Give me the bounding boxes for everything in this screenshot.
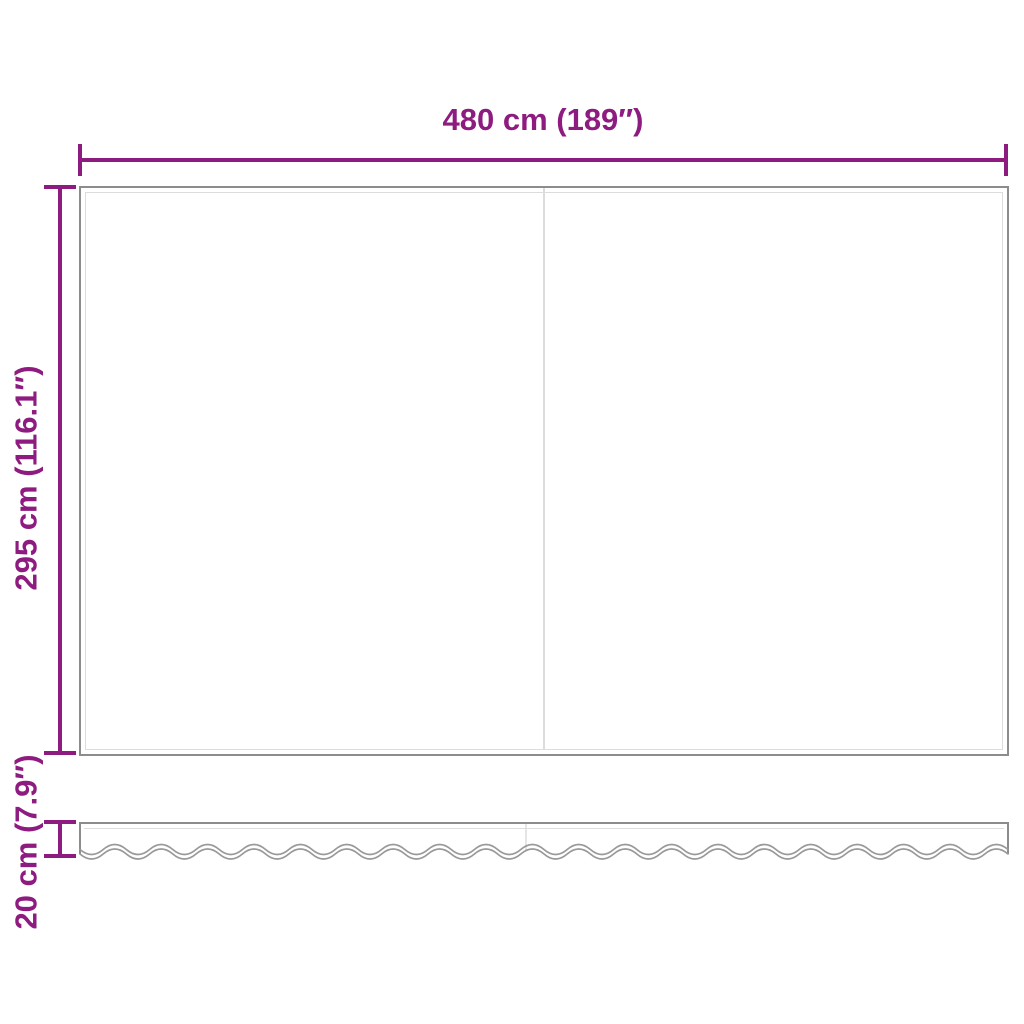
width-dimension-right-tick [1004, 144, 1008, 176]
height-dimension-line [58, 187, 62, 755]
width-dimension-left-tick [78, 144, 82, 176]
height-dimension-top-tick [44, 185, 76, 189]
valance-dimension-bottom-tick [44, 854, 76, 858]
valance-height-dimension-line [58, 822, 62, 858]
height-dimension-label: 295 cm (116.1″) [11, 365, 42, 590]
valance-height-dimension-label: 20 cm (7.9″) [11, 754, 42, 929]
width-dimension-line [80, 158, 1006, 162]
valance-strip [79, 820, 1009, 870]
fabric-center-seam [543, 188, 545, 749]
fabric-panel [79, 186, 1009, 756]
valance-dimension-top-tick [44, 820, 76, 824]
width-dimension-label: 480 cm (189″) [80, 104, 1006, 135]
product-dimension-diagram: 480 cm (189″) 295 cm (116.1″) 20 cm (7.9… [0, 0, 1024, 1024]
height-dimension-bottom-tick [44, 751, 76, 755]
